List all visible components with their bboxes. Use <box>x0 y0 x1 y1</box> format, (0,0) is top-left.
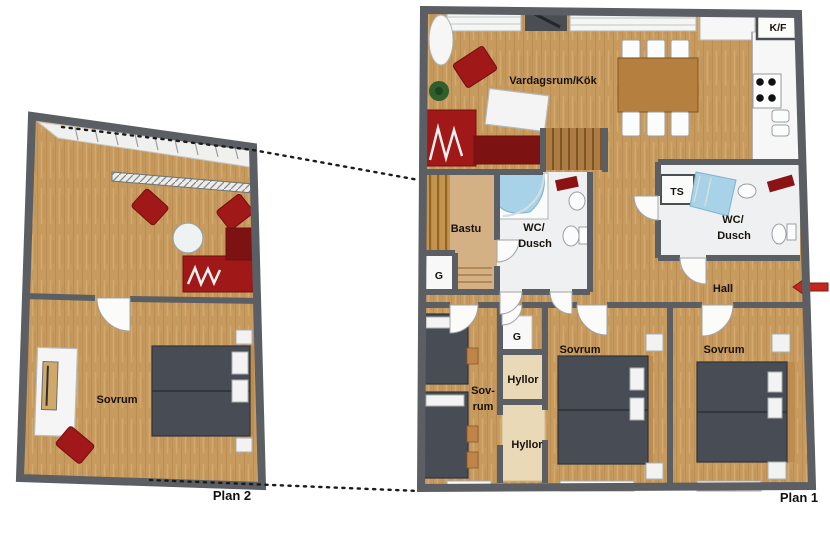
plan1-wc1-label-line2: Dusch <box>518 238 552 250</box>
plan1-bedroom-small-label-line2: rum <box>473 401 494 413</box>
plan1-shelves2-label: Hyllor <box>511 439 543 451</box>
plan1-dining-set <box>618 40 698 136</box>
plan2-nightstand-top <box>236 330 252 344</box>
plan1-wc2-label-line2: Dusch <box>717 230 751 242</box>
plan1-sink1 <box>569 192 585 210</box>
plan2-pillow2 <box>232 380 248 402</box>
plan1-bay-window <box>429 15 453 65</box>
plan1-dining-table <box>618 58 698 112</box>
plan1-bedroom-right-label: Sovrum <box>704 344 745 356</box>
plan2-title: Plan 2 <box>213 488 251 503</box>
plan1-sink-kitchen <box>772 110 789 122</box>
plan1-closet-sauna-label: G <box>435 270 443 282</box>
plan1-ts-label: TS <box>670 186 683 198</box>
plan1-toilet2 <box>772 224 786 244</box>
plan2-bedroom-label: Sovrum <box>97 394 138 406</box>
plan1-plant-center <box>435 87 443 95</box>
floorplan-figure: Sovrum Plan 2 <box>0 0 830 555</box>
plan2-round-table <box>173 223 203 253</box>
plan1-living-label: Vardagsrum/Kök <box>509 75 597 87</box>
plan1-staircase <box>545 128 605 170</box>
plan1-bathroom2 <box>658 162 800 258</box>
plan1-title: Plan 1 <box>780 490 818 505</box>
floorplan-svg: Sovrum Plan 2 <box>0 0 830 555</box>
plan1-toilet1 <box>563 226 579 246</box>
plan1-group: Vardagsrum/Kök K/F Bastu WC/ Dusch TS WC… <box>421 8 828 505</box>
plan1-shelves1-label: Hyllor <box>507 374 539 386</box>
plan1-wc2-label-line1: WC/ <box>722 214 743 226</box>
plan1-closet-hall-label: G <box>513 331 521 343</box>
plan2-nightstand-bottom <box>236 438 252 452</box>
plan1-coffee-table <box>485 88 549 131</box>
plan1-hall-label: Hall <box>713 283 733 295</box>
plan2-wardrobe <box>34 347 77 436</box>
plan1-sink2 <box>738 184 756 198</box>
plan1-bedroom-small-label-line1: Sov- <box>471 385 495 397</box>
plan1-wc1-label-line1: WC/ <box>523 222 544 234</box>
plan2-double-bed <box>152 330 253 452</box>
plan1-sauna-label: Bastu <box>451 223 482 235</box>
plan1-kf-label: K/F <box>770 22 788 34</box>
plan2-group: Sovrum Plan 2 <box>20 116 262 503</box>
plan1-stove <box>753 74 781 108</box>
plan1-bedroom-mid-label: Sovrum <box>560 344 601 356</box>
plan2-pillow1 <box>232 352 248 374</box>
